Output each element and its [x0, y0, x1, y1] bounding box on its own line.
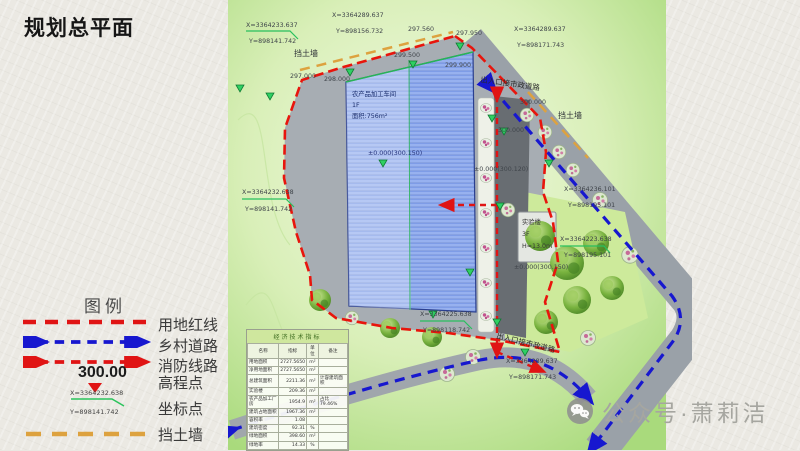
indicator-row: 绿地率14.33%: [248, 441, 348, 449]
elevation-label: 300.000: [498, 127, 524, 134]
indicator-row: 用地面积2727.5650m²: [248, 359, 348, 367]
coord-label: Y=898141.742: [248, 38, 296, 45]
indicator-row: 净用地面积2727.5650m²: [248, 367, 348, 375]
page-title: 规划总平面: [24, 12, 134, 42]
indicator-col-header: 名称: [248, 344, 279, 359]
lab-height: H=13.0m: [522, 243, 552, 250]
indicator-table-header: 名称指标单位备注: [248, 344, 348, 359]
coord-label: X=3364289.637: [514, 26, 566, 33]
coord-label: Y=898195.101: [567, 202, 615, 209]
coord-label: Y=898195.101: [563, 252, 611, 259]
indicator-row: 总建筑面积2211.36m²计容建筑面积: [248, 375, 348, 388]
indicator-table-title: 经济技术指标: [247, 330, 348, 343]
coord-label: Y=898171.743: [508, 374, 556, 381]
coord-label: Y=898171.743: [516, 42, 564, 49]
elevation-label: 299.900: [445, 62, 471, 69]
elevation-label: 299.500: [394, 52, 420, 59]
retaining-wall-label: 挡土墙: [294, 48, 318, 58]
indicator-col-header: 指标: [279, 344, 307, 359]
indicator-table-body: 用地面积2727.5650m²净用地面积2727.5650m²总建筑面积2211…: [248, 359, 348, 450]
coord-label: X=3364289.637: [506, 358, 558, 365]
coordinate-sample-y: Y=898141.742: [70, 409, 132, 416]
indicator-table: 经济技术指标 名称指标单位备注 用地面积2727.5650m²净用地面积2727…: [246, 329, 349, 451]
level-mark: ±0.000(300.150): [368, 150, 422, 157]
coord-label: Y=898118.742: [422, 327, 470, 334]
level-mark: ±0.000(300.150): [514, 264, 568, 271]
coord-label: X=3364223.638: [560, 236, 612, 243]
coord-label: X=3364232.638: [242, 189, 294, 196]
elevation-label: 297.000: [290, 73, 316, 80]
legend-label-elevation-point: 高程点: [158, 372, 203, 393]
indicator-row: 建筑密度92.31%: [248, 425, 348, 433]
retaining-wall-sample: [20, 428, 158, 440]
indicator-row: 容积率1.08: [248, 417, 348, 425]
blue-arrow-dash-sample: [20, 336, 158, 348]
watermark-text: 公众号·萧莉洁: [602, 394, 769, 428]
indicator-col-header: 单位: [307, 344, 319, 359]
coord-label: X=3364236.101: [564, 186, 616, 193]
legend-label-village-road: 乡村道路: [158, 335, 218, 356]
legend: 图例 用地红线 乡村道路 消防线路 300.00 高程点 X=3364232.6…: [8, 290, 238, 448]
coord-label: Y=898141.742: [244, 206, 292, 213]
coordinate-sample: X=3364232.638 Y=898141.742: [70, 390, 132, 416]
coordinate-sample-x: X=3364232.638: [70, 390, 132, 397]
coord-label: X=3364225.638: [420, 311, 472, 318]
indicator-col-header: 备注: [318, 344, 347, 359]
legend-heading: 图例: [84, 292, 126, 317]
elevation-label: 300.000: [520, 99, 546, 106]
coord-label: Y=898156.732: [335, 28, 383, 35]
elevation-label: 297.560: [408, 26, 434, 33]
elevation-sample-value: 300.00: [78, 364, 127, 382]
workshop-floors: 1F: [352, 102, 360, 109]
wechat-icon: [566, 397, 594, 425]
lab-name: 实验楼: [522, 217, 542, 226]
slide: 规划总平面: [0, 0, 800, 450]
indicator-row: 绿地面积398.60m²: [248, 433, 348, 441]
watermark: 公众号·萧莉洁: [566, 394, 769, 428]
indicator-row: 实验楼209.36m²: [248, 388, 348, 396]
workshop-area: 面积:756m²: [352, 111, 388, 120]
indicator-row: 农产品加工厂房1954.9m²占比79.46%: [248, 396, 348, 409]
indicator-row: 建筑占地面积1967.36m²: [248, 409, 348, 417]
coord-label: X=3364289.637: [332, 12, 384, 19]
legend-label-land-red-line: 用地红线: [158, 314, 218, 335]
elevation-label: 298.000: [324, 76, 350, 83]
legend-label-retaining-wall: 挡土墙: [158, 424, 203, 445]
lab-floors: 3F: [522, 231, 530, 238]
retaining-wall-label: 挡土墙: [558, 110, 582, 120]
coordinate-sample-leader: [70, 397, 132, 407]
red-dash-sample: [20, 316, 158, 328]
workshop-name: 农产品加工车间: [352, 89, 396, 98]
legend-label-coordinate-point: 坐标点: [158, 398, 203, 419]
elevation-label: 297.950: [456, 30, 482, 37]
level-mark: ±0.000(300.120): [474, 166, 528, 173]
coord-label: X=3364233.637: [246, 22, 298, 29]
